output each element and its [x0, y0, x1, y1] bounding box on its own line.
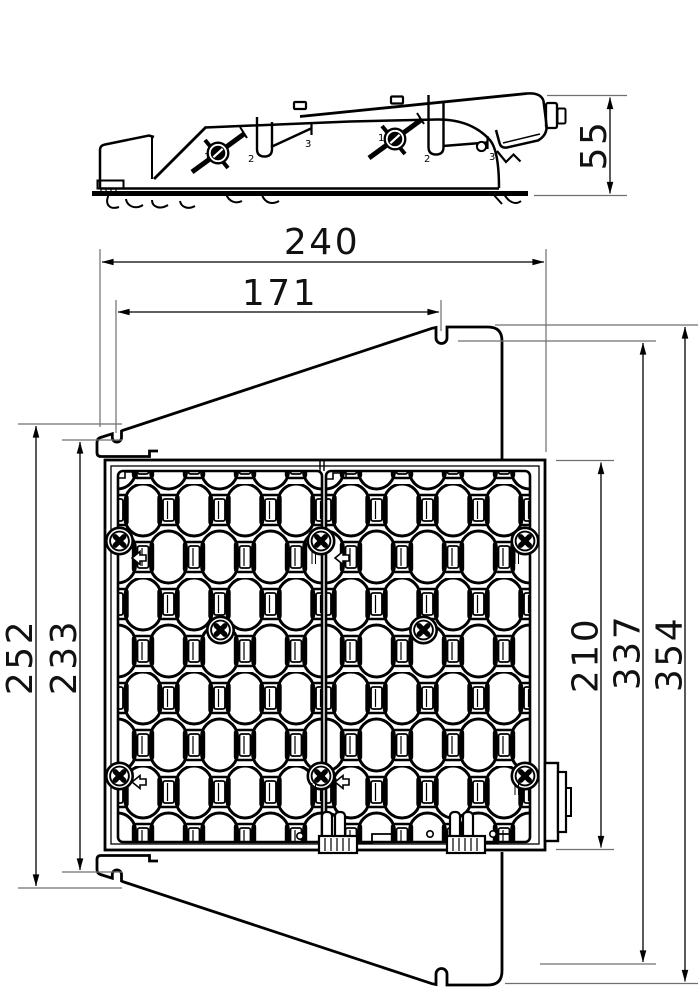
dim-overall-width: 240 — [284, 222, 360, 263]
dim-hook-outer-height: 252 — [0, 619, 41, 695]
callout-3-left: 3 — [305, 139, 311, 150]
cell-module-left — [118, 471, 322, 842]
screw-bottom-left — [106, 763, 132, 789]
screw-top-right — [512, 528, 538, 554]
drawing-canvas: 1 2 3 1 2 3 — [0, 0, 700, 1000]
screw-center-right-module — [410, 617, 436, 643]
dim-overall-height: 354 — [650, 616, 691, 692]
screw-top-left — [106, 528, 132, 554]
callout-2-right: 2 — [424, 154, 430, 165]
technical-drawing-page: 1 2 3 1 2 3 — [0, 0, 700, 1000]
screw-center-left-module — [207, 617, 233, 643]
dim-notch-spacing: 171 — [242, 273, 318, 314]
dim-flap-notch-height: 337 — [608, 614, 649, 690]
arm-screw — [477, 142, 486, 151]
callout-2-left: 2 — [248, 154, 254, 165]
screw-top-middle — [308, 528, 334, 554]
screw-bottom-right — [512, 763, 538, 789]
holder-body — [105, 460, 571, 853]
callout-1-right: 1 — [378, 133, 384, 144]
dim-profile-height: 55 — [574, 120, 615, 171]
callout-3-right: 3 — [489, 152, 495, 163]
dim-hook-inner-height: 233 — [44, 619, 85, 695]
callout-1-left: 1 — [204, 152, 210, 163]
side-connector-tab — [545, 763, 558, 841]
plan-view — [97, 327, 571, 985]
cell-module-right — [326, 471, 530, 842]
dim-body-height: 210 — [566, 617, 607, 693]
